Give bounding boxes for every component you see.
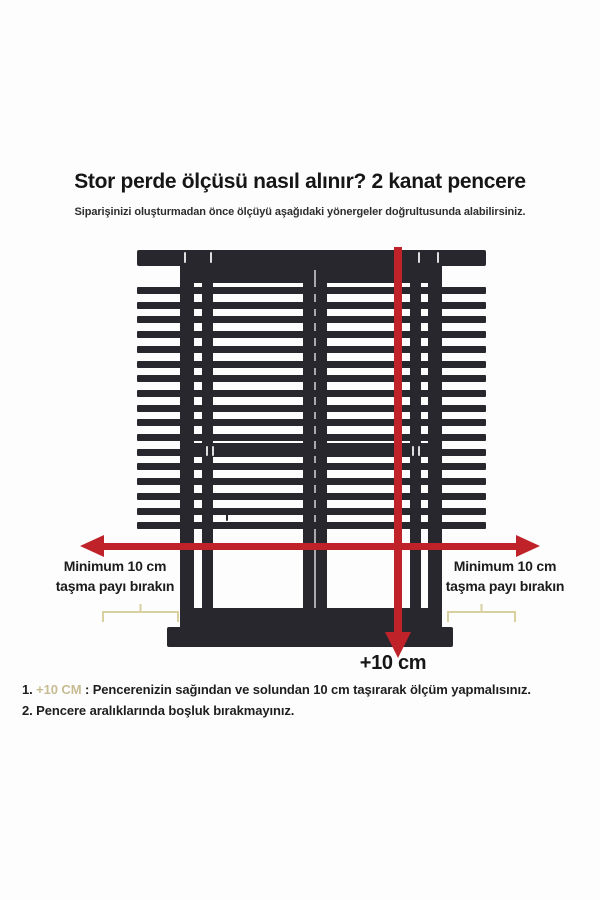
note-2-number: 2.	[22, 703, 33, 718]
blind-headrail	[137, 250, 486, 266]
width-arrow-shaft	[98, 543, 522, 550]
window-bottom-rail	[180, 608, 442, 627]
instruction-notes: 1. +10 CM : Pencerenizin sağından ve sol…	[22, 679, 582, 721]
blind-slat	[137, 361, 486, 368]
blind-slat	[137, 419, 486, 426]
window-handle-mark	[212, 446, 214, 456]
mount-bracket-mark	[418, 252, 420, 263]
mount-bracket-mark	[210, 252, 212, 263]
blind-slat	[137, 390, 486, 397]
blind-slat	[137, 449, 486, 456]
blind-slat	[137, 493, 486, 500]
blind-slat	[137, 375, 486, 382]
right-overhang-bracket-icon	[447, 603, 516, 623]
arrow-left-icon	[80, 535, 104, 557]
window-handle-mark	[412, 446, 414, 456]
blind-slat	[137, 302, 486, 309]
blind-slat	[137, 346, 486, 353]
blind-slat	[137, 522, 486, 529]
blind-slat	[137, 316, 486, 323]
note-2: 2. Pencere aralıklarında boşluk bırakmay…	[22, 700, 582, 721]
mount-bracket-mark	[184, 252, 186, 263]
note-1-highlight: +10 CM	[36, 682, 81, 697]
window-handle-mark	[418, 446, 420, 456]
blind-slat	[137, 287, 486, 294]
arrow-right-icon	[516, 535, 540, 557]
left-overhang-bracket-icon	[102, 603, 179, 623]
blind-slat	[137, 478, 486, 485]
blind-slat	[137, 463, 486, 470]
window-blind-diagram: Minimum 10 cm taşma payı bırakın Minimum…	[0, 0, 600, 900]
measurement-guide-page: Stor perde ölçüsü nasıl alınır? 2 kanat …	[0, 0, 600, 900]
right-overhang-label: Minimum 10 cm taşma payı bırakın	[410, 556, 600, 596]
note-1-number: 1.	[22, 682, 33, 697]
height-arrow-shaft	[394, 247, 402, 633]
window-handle-mark	[206, 446, 208, 456]
note-1-text: : Pencerenizin sağından ve solundan 10 c…	[85, 682, 531, 697]
mount-bracket-mark	[437, 252, 439, 263]
blind-slat	[137, 405, 486, 412]
note-1: 1. +10 CM : Pencerenizin sağından ve sol…	[22, 679, 582, 700]
note-2-text: Pencere aralıklarında boşluk bırakmayını…	[36, 703, 294, 718]
blind-slat	[137, 331, 486, 338]
blind-slat	[137, 434, 486, 441]
left-overhang-label: Minimum 10 cm taşma payı bırakın	[20, 556, 210, 596]
blind-slat	[137, 508, 486, 515]
plus-10cm-label: +10 cm	[343, 652, 443, 675]
